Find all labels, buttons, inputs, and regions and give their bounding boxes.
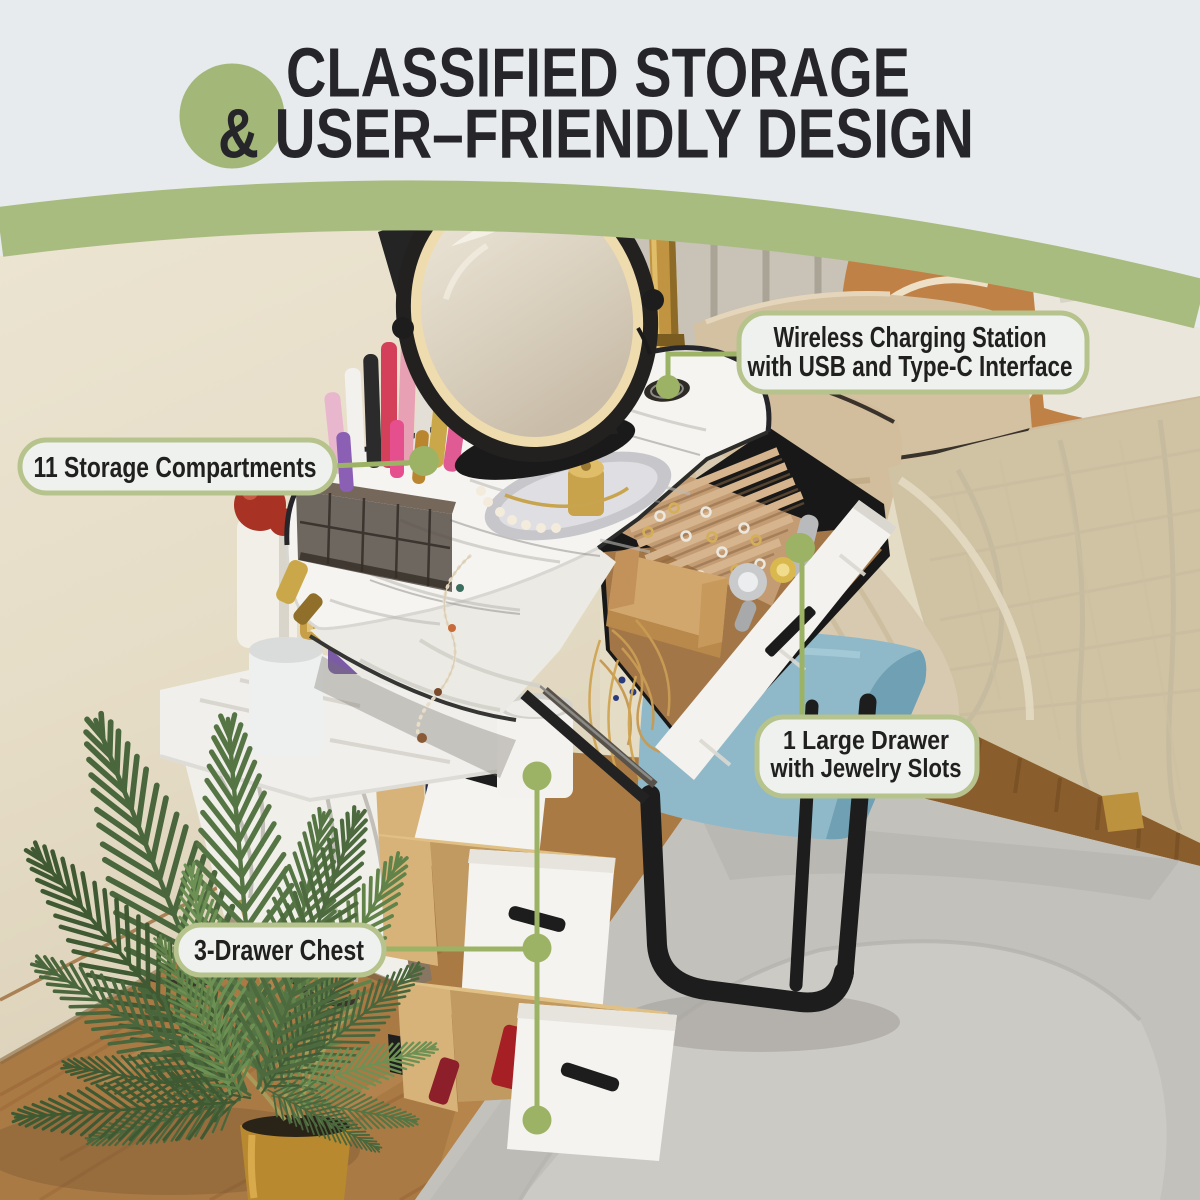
svg-text:11 Storage Compartments: 11 Storage Compartments (34, 452, 317, 484)
svg-text:with USB and Type-C Interface: with USB and Type-C Interface (747, 351, 1073, 383)
svg-text:with Jewelry Slots: with Jewelry Slots (770, 755, 962, 783)
svg-text:1 Large Drawer: 1 Large Drawer (783, 727, 949, 755)
svg-text:Wireless Charging Station: Wireless Charging Station (774, 322, 1047, 354)
svg-text:3-Drawer Chest: 3-Drawer Chest (194, 935, 364, 967)
svg-text:& USER–FRIENDLY DESIGN: & USER–FRIENDLY DESIGN (218, 95, 974, 173)
